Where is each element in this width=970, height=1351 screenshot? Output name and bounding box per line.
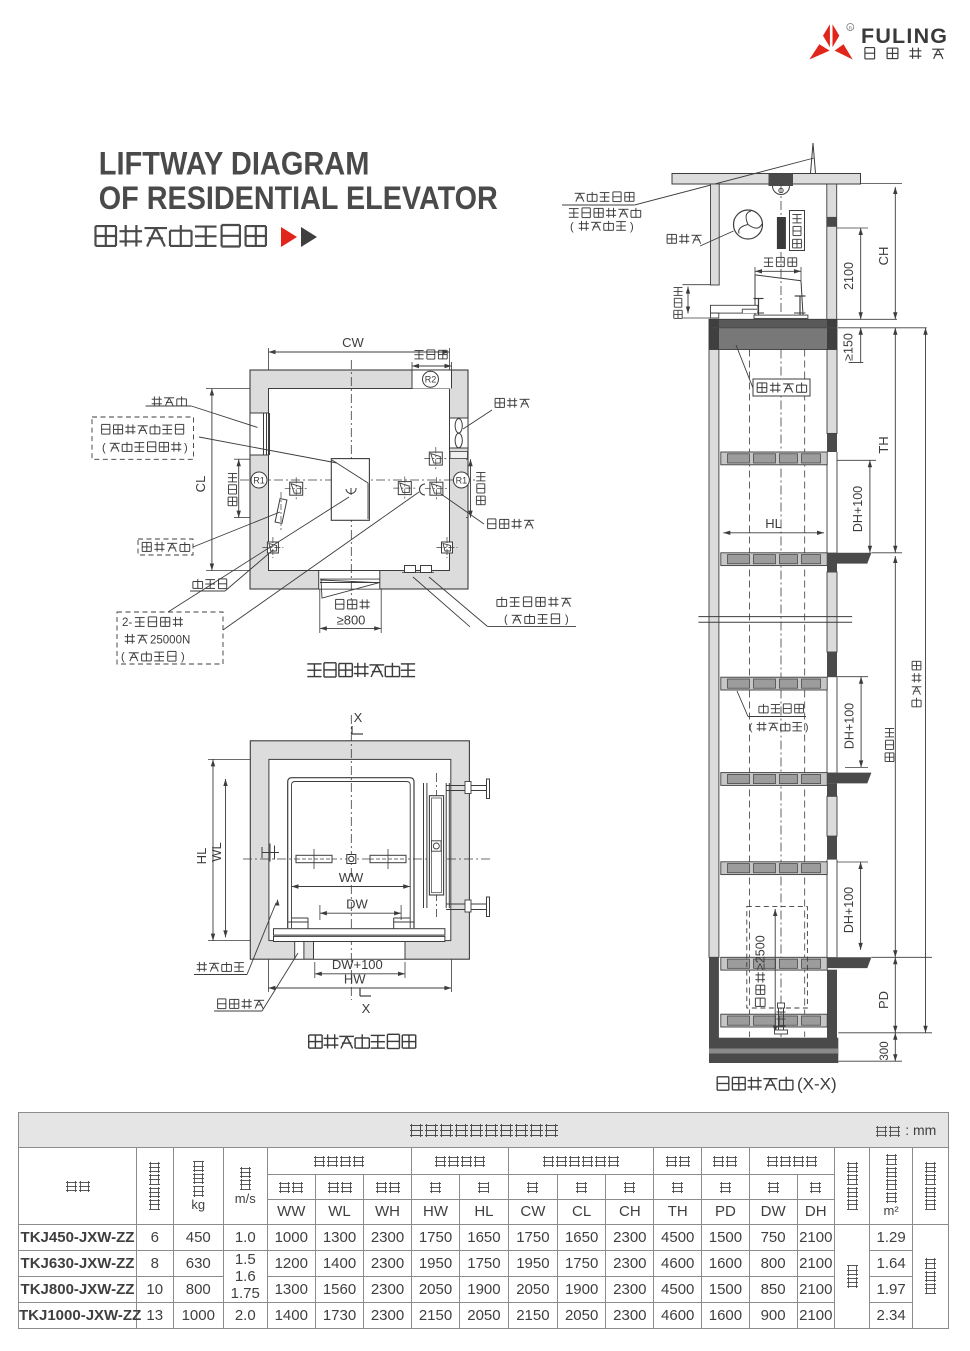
svg-text:≥800: ≥800 [337,613,366,628]
svg-text:LIFTWAY DIAGRAM: LIFTWAY DIAGRAM [99,146,370,182]
svg-text:): ) [184,442,188,454]
svg-text:≥2500: ≥2500 [754,935,768,970]
svg-text:PD: PD [876,991,891,1009]
svg-text:DH+100: DH+100 [843,703,857,749]
svg-text:CH: CH [876,247,891,266]
svg-text:2100: 2100 [842,262,856,290]
svg-text:(: ( [121,651,125,663]
svg-text:X: X [362,1001,371,1016]
svg-text:≥150: ≥150 [842,333,856,361]
svg-text:TH: TH [876,436,891,453]
svg-text:(: ( [570,221,574,233]
svg-text:DW: DW [346,897,368,912]
svg-text:25000N: 25000N [150,635,190,647]
svg-text:OF RESIDENTIAL ELEVATOR: OF RESIDENTIAL ELEVATOR [99,180,498,216]
svg-text:): ) [805,722,809,734]
svg-text:(X-X): (X-X) [797,1075,837,1094]
svg-text:HL: HL [765,516,782,531]
svg-text:CW: CW [342,335,364,350]
svg-text:): ) [630,221,634,233]
svg-text:(: ( [504,614,508,626]
svg-text:2-: 2- [122,617,132,629]
svg-text:R2: R2 [425,375,437,385]
svg-text:HL: HL [194,848,209,865]
svg-text:R1: R1 [456,475,468,485]
svg-text:): ) [181,651,185,663]
svg-text:DH+100: DH+100 [851,486,865,532]
svg-text:WL: WL [209,842,224,862]
svg-text:X: X [354,710,363,725]
svg-text:R: R [849,25,853,31]
svg-text:WW: WW [339,870,364,885]
svg-text:DH+100: DH+100 [842,887,856,933]
svg-text:DW+100: DW+100 [332,957,383,972]
svg-text:FULING: FULING [861,24,948,48]
svg-text:(: ( [749,722,753,734]
svg-text:CL: CL [193,476,208,493]
svg-text:(: ( [102,442,106,454]
svg-text:R1: R1 [253,475,265,485]
svg-text:): ) [565,614,569,626]
svg-text:300: 300 [879,1041,891,1060]
svg-text:HW: HW [344,972,366,987]
